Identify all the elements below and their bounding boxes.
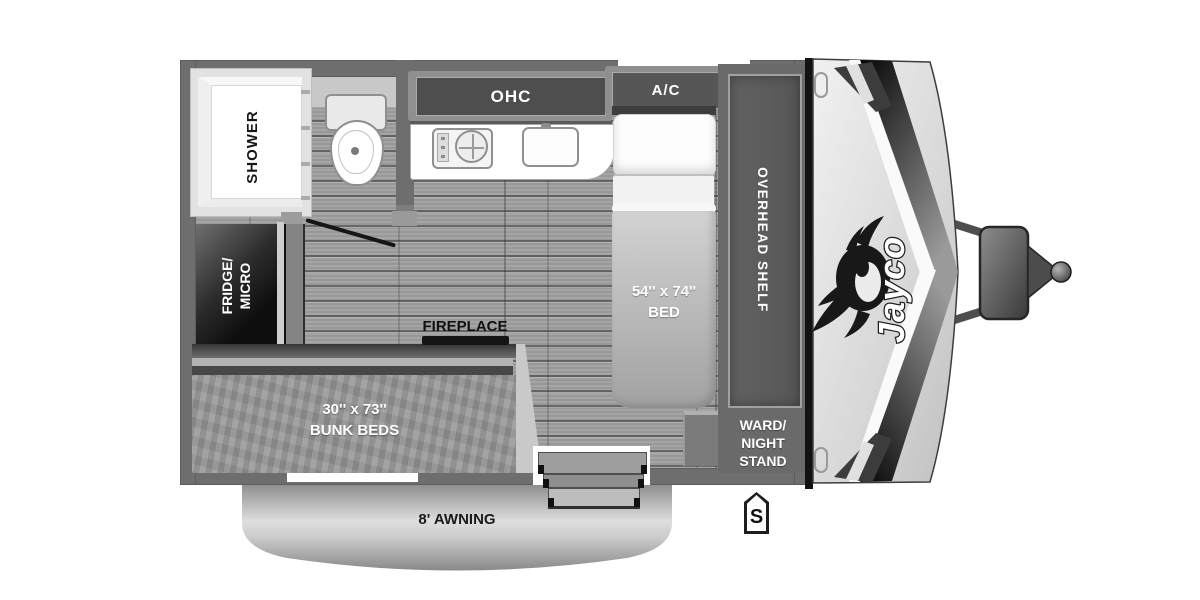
bunk-back-ledge [192,344,517,358]
ac-label: A/C [612,72,720,109]
bathroom-wall-cap [392,211,417,226]
floorplan-canvas: SHOWER FRIDGE/ MICRO 30'' x 73'' BUNK BE… [0,0,1200,600]
shower-door-tick [301,196,310,200]
window-bunk [287,473,418,482]
entry-step-3 [548,488,640,509]
nightstand [683,411,718,466]
brand-logo-text: Jayco [871,236,912,343]
shower-door-tick [301,90,310,94]
overhead-shelf-label: OVERHEAD SHELF [752,145,774,335]
spare-tire-letter: S [744,492,769,534]
fireplace-label: FIREPLACE [420,319,510,335]
shower-door-tick [301,162,310,166]
fireplace [422,336,509,345]
bunk-label-line1: 30'' x 73'' [252,399,457,420]
ward-label-line1: WARD/ [720,416,806,434]
bed-label-line1: 54'' x 74'' [614,281,714,302]
stove-burner [455,130,488,163]
fridge-label-line2: MICRO [236,263,254,310]
entry-step-1 [538,452,647,474]
toilet-drain [351,147,359,155]
bed-label-line2: BED [614,302,714,323]
bunk-rail-dark [192,366,513,375]
overhead-cabinet-label: OHC [416,77,606,116]
cap-rear-edge [805,58,813,489]
kitchen-sink [522,127,579,167]
entry-step-2 [543,474,644,488]
shower-label: SHOWER [239,77,265,217]
pantry-cabinet [284,224,305,346]
bunk-label-line2: BUNK BEDS [252,420,457,441]
spare-tire-marker: S [744,492,769,534]
ward-label-line3: STAND [720,452,806,470]
shower-door-tick [301,126,310,130]
fridge-label-line1: FRIDGE/ [218,258,236,315]
fridge-micro-label: FRIDGE/ MICRO [216,224,256,348]
wardrobe-nightstand-label: WARD/ NIGHT STAND [720,414,806,472]
front-cap-and-hitch: Jayco [800,50,1090,495]
stove-controls [437,133,449,162]
bed-label: 54'' x 74'' BED [614,280,714,324]
hitch-ball [1051,262,1071,282]
ward-label-line2: NIGHT [720,434,806,452]
bunk-rail-light [192,358,513,366]
pantry-trim [277,222,284,348]
bed-pillow [613,114,716,177]
awning-label: 8' AWNING [242,511,672,529]
hitch-assembly [948,222,1071,322]
propane-box [980,227,1028,319]
bunk-beds-label: 30'' x 73'' BUNK BEDS [252,397,457,443]
